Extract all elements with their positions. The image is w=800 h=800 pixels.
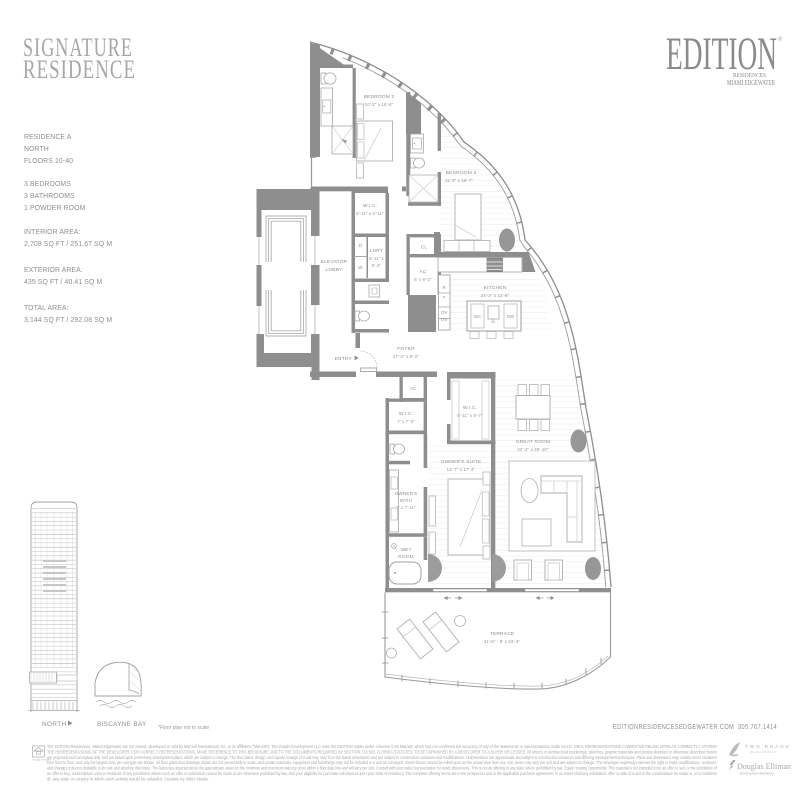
svg-text:Development Marketing: Development Marketing — [740, 772, 774, 776]
svg-text:KITCHEN: KITCHEN — [484, 285, 507, 291]
svg-text:LDRY: LDRY — [370, 248, 384, 254]
svg-text:TERRACE: TERRACE — [490, 631, 515, 637]
svg-text:FOYER: FOYER — [397, 346, 415, 352]
svg-text:TWO ROADS: TWO ROADS — [745, 744, 790, 749]
svg-text:RESIDENCES: RESIDENCES — [733, 72, 766, 79]
svg-text:1 POWDER ROOM: 1 POWDER ROOM — [24, 205, 86, 212]
svg-text:*Floor plan not to scale: *Floor plan not to scale — [158, 725, 209, 731]
svg-text:are proposed and conceptual on: are proposed and conceptual only, and ar… — [47, 755, 717, 760]
svg-text:D: D — [359, 243, 363, 249]
svg-text:W: W — [358, 265, 363, 271]
svg-text:5'-11" x 4'-11": 5'-11" x 4'-11" — [356, 211, 384, 216]
svg-text:LOBBY: LOBBY — [325, 267, 343, 273]
svg-text:The EDITION Residences, Miami: The EDITION Residences, Miami Edgewater … — [47, 744, 717, 749]
svg-text:ROOM: ROOM — [398, 554, 414, 560]
svg-text:FLOORS 10-40: FLOORS 10-40 — [24, 158, 73, 165]
svg-text:CL: CL — [421, 245, 428, 251]
svg-text:BEDROOM 2: BEDROOM 2 — [364, 94, 395, 100]
svg-text:Douglas Elliman: Douglas Elliman — [737, 762, 791, 771]
svg-text:22'-2" x 26'-10": 22'-2" x 26'-10" — [517, 447, 549, 452]
svg-text:7' x 7'-3": 7' x 7'-3" — [397, 419, 415, 424]
svg-text:MIAMI EDGEWATER: MIAMI EDGEWATER — [727, 79, 775, 87]
svg-text:ENTRY: ENTRY — [335, 356, 353, 362]
svg-text:7' x 7'-11": 7' x 7'-11" — [396, 505, 416, 510]
svg-text:OWNER'S: OWNER'S — [395, 491, 418, 496]
svg-text:10'-2" x 16'-6": 10'-2" x 16'-6" — [365, 102, 394, 107]
svg-text:DW: DW — [507, 314, 514, 319]
svg-text:W.I.C.: W.I.C. — [363, 203, 377, 209]
svg-text:6'-11" x 8'-7": 6'-11" x 8'-7" — [457, 413, 483, 418]
svg-text:AC: AC — [410, 386, 416, 391]
svg-text:WC: WC — [474, 314, 481, 319]
svg-text:R: R — [443, 285, 446, 290]
svg-text:ELEVATOR: ELEVATOR — [321, 259, 348, 265]
svg-text:F: F — [443, 295, 446, 300]
svg-text:11'-3" x 16'-7": 11'-3" x 16'-7" — [445, 178, 474, 183]
svg-text:3 BATHROOMS: 3 BATHROOMS — [24, 193, 75, 200]
svg-text:EQUAL HOUSING: EQUAL HOUSING — [33, 759, 51, 762]
svg-text:BEDROOM 3: BEDROOM 3 — [446, 170, 477, 176]
svg-text:BATH: BATH — [400, 498, 412, 503]
svg-text:EXTERIOR AREA:: EXTERIOR AREA: — [24, 267, 83, 274]
svg-text:OV: OV — [441, 310, 447, 315]
svg-text:OWNER'S SUITE: OWNER'S SUITE — [441, 459, 482, 465]
svg-text:6' x 6'-2": 6' x 6'-2" — [414, 277, 432, 282]
svg-text:an offer to buy, condominium u: an offer to buy, condominium units to re… — [47, 771, 717, 776]
svg-text:11'-6" - 8' x 43'-4": 11'-6" - 8' x 43'-4" — [484, 639, 520, 644]
svg-text:DEVELOPMENT: DEVELOPMENT — [750, 751, 777, 754]
svg-text:BISCAYNE BAY: BISCAYNE BAY — [97, 721, 147, 728]
svg-text:3,144 SQ FT / 292.08 SQ M: 3,144 SQ FT / 292.08 SQ M — [24, 317, 112, 324]
svg-text:THE REPRESENTATIONS OF THE DEV: THE REPRESENTATIONS OF THE DEVELOPER. FO… — [47, 749, 718, 754]
svg-text:from floor to floor, and only: from floor to floor, and only the larges… — [47, 760, 717, 765]
svg-text:EDITIONRESIDENCESEDGEWATER.COM: EDITIONRESIDENCESEDGEWATER.COM 305.767.1… — [613, 722, 777, 731]
svg-text:435 SQ FT / 40.41 SQ M: 435 SQ FT / 40.41 SQ M — [24, 279, 102, 286]
svg-text:OV: OV — [441, 317, 447, 322]
svg-text:NORTH: NORTH — [42, 721, 67, 728]
svg-text:6'-4": 6'-4" — [372, 263, 381, 268]
svg-text:of, any state or country in wh: of, any state or country in which such a… — [47, 776, 209, 781]
svg-text:and changes it deems desirable: and changes it deems desirable in its so… — [47, 766, 718, 771]
svg-text:12'-7" x 17'-4": 12'-7" x 17'-4" — [447, 467, 476, 472]
svg-text:17'-4" x 9'-2": 17'-4" x 9'-2" — [393, 354, 419, 359]
svg-text:TOTAL AREA:: TOTAL AREA: — [24, 305, 69, 312]
svg-text:AC: AC — [420, 269, 427, 275]
svg-text:24'-3" x 14'-6": 24'-3" x 14'-6" — [481, 293, 510, 298]
svg-text:INTERIOR AREA:: INTERIOR AREA: — [24, 229, 81, 236]
svg-text:RESIDENCE: RESIDENCE — [23, 55, 136, 84]
svg-text:NORTH: NORTH — [24, 146, 49, 153]
svg-text:3 BEDROOMS: 3 BEDROOMS — [24, 181, 71, 188]
svg-text:GREAT ROOM: GREAT ROOM — [516, 439, 550, 445]
svg-text:RESIDENCE A: RESIDENCE A — [24, 134, 72, 141]
svg-text:WET: WET — [400, 547, 411, 553]
svg-text:®: ® — [778, 36, 783, 43]
svg-text:2,709 SQ FT / 251.67 SQ M: 2,709 SQ FT / 251.67 SQ M — [24, 241, 112, 248]
svg-text:W.I.C.: W.I.C. — [399, 411, 413, 417]
svg-text:W.I.C.: W.I.C. — [463, 405, 477, 411]
svg-text:5'-11" x: 5'-11" x — [369, 256, 385, 261]
